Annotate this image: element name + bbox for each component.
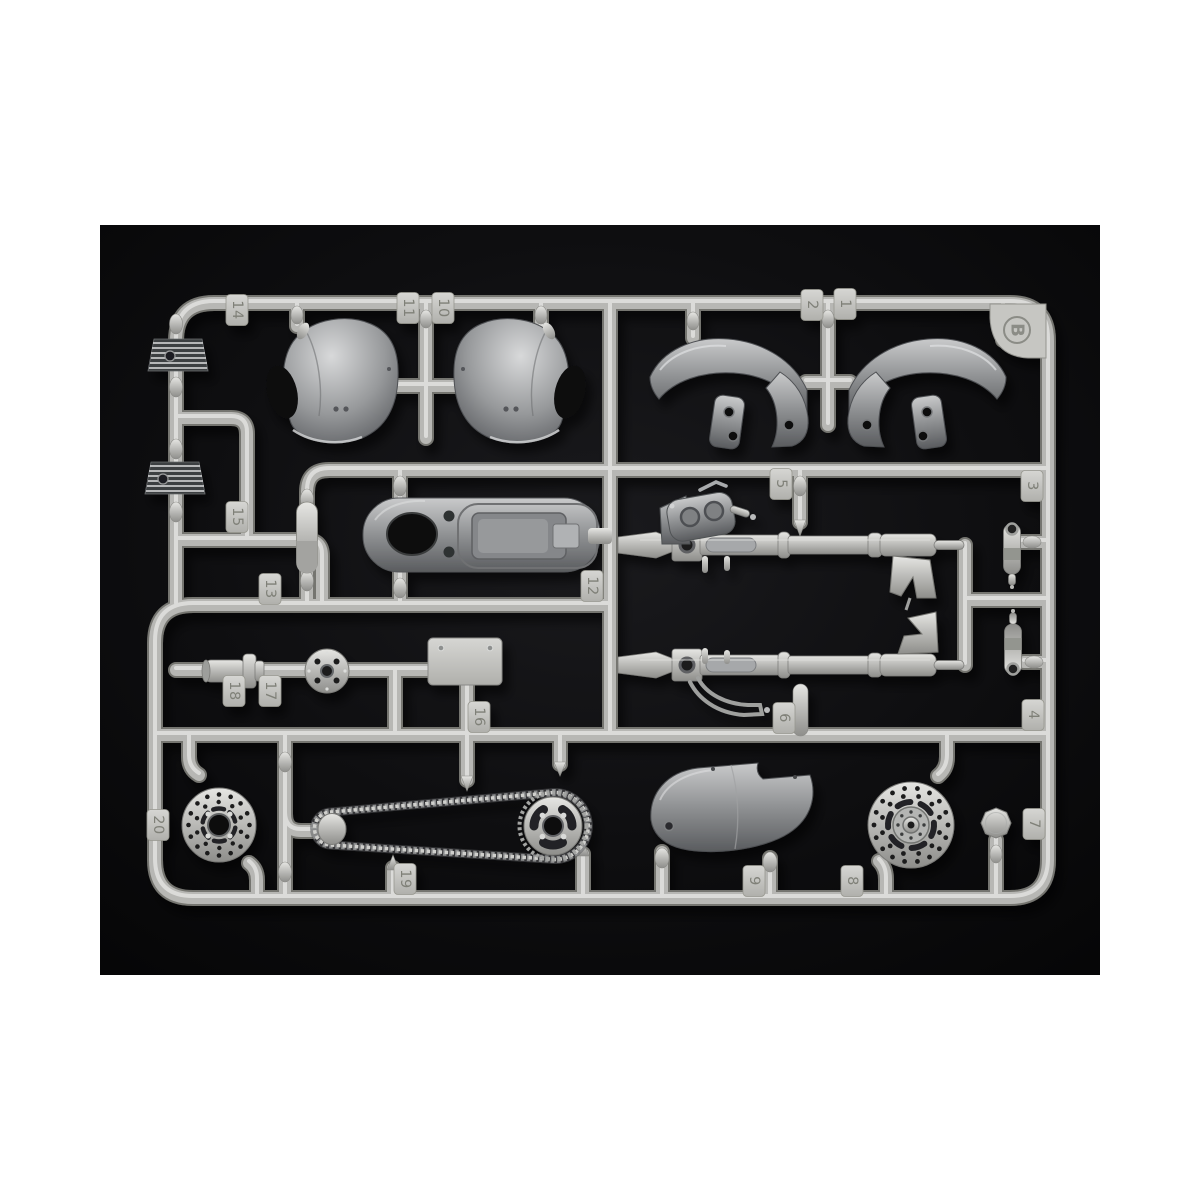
tag-number: 16: [471, 707, 487, 726]
tag-number: 14: [229, 300, 245, 319]
part-8-front-brake-disc-with-hub: [868, 782, 954, 868]
part-number-tag-16: 16: [468, 702, 490, 733]
tag-number: 13: [262, 579, 278, 598]
product-photo-canvas: B: [0, 0, 1200, 1200]
part-number-tag-6: 6: [773, 703, 795, 734]
tag-number: 7: [1026, 819, 1042, 829]
tag-number: 11: [400, 298, 416, 317]
tag-number: 3: [1024, 481, 1040, 491]
part-number-tag-20: 20: [147, 810, 169, 841]
part-20-rear-brake-disc: [182, 788, 256, 862]
part-number-tag-4: 4: [1022, 700, 1044, 731]
part-number-tag-11: 11: [397, 293, 419, 324]
part-number-tag-17: 17: [259, 676, 281, 707]
tag-number: 4: [1025, 710, 1041, 720]
part-number-tag-5: 5: [770, 469, 792, 500]
part-number-tag-15: 15: [226, 502, 248, 533]
tag-number: 20: [150, 815, 166, 834]
part-14-cylinder-fin-block: [148, 339, 208, 371]
tag-number: 6: [776, 713, 792, 723]
part-number-tag-7: 7: [1023, 809, 1045, 840]
part-number-tag-18: 18: [223, 676, 245, 707]
part-number-tag-2: 2: [801, 290, 823, 321]
tag-number: 10: [435, 298, 451, 317]
part-16-number-plate: [428, 638, 502, 685]
part-number-tag-9: 9: [743, 866, 765, 897]
tag-number: 9: [746, 876, 762, 886]
part-number-tag-8: 8: [841, 866, 863, 897]
tag-number: 17: [262, 681, 278, 700]
part-15-cylinder-fin-block: [145, 462, 205, 494]
part-number-tag-10: 10: [432, 293, 454, 324]
part-number-tag-3: 3: [1021, 471, 1043, 502]
part-number-tag-14: 14: [226, 295, 248, 326]
tag-number: 18: [226, 681, 242, 700]
part-17-hub-plate-disc: [305, 649, 349, 693]
part-number-tag-13: 13: [259, 574, 281, 605]
part-13-silencer-capsule: [297, 502, 318, 573]
tag-number: 5: [773, 479, 789, 489]
tag-number: 2: [804, 300, 820, 310]
sprue-photo-svg: B: [0, 0, 1200, 1200]
tag-number: 15: [229, 507, 245, 526]
part-number-tag-12: 12: [581, 571, 603, 602]
part-12-fuel-tank-and-seat-base: [363, 498, 612, 572]
part-number-tag-1: 1: [834, 289, 856, 320]
tag-number: 12: [584, 576, 600, 595]
part-7-filler-cap-disc: [981, 808, 1011, 838]
sprue-letter: B: [1007, 323, 1028, 337]
part-number-tag-19: 19: [394, 864, 416, 895]
tag-number: 1: [837, 299, 853, 309]
tag-number: 8: [844, 876, 860, 886]
tag-number: 19: [397, 869, 413, 888]
